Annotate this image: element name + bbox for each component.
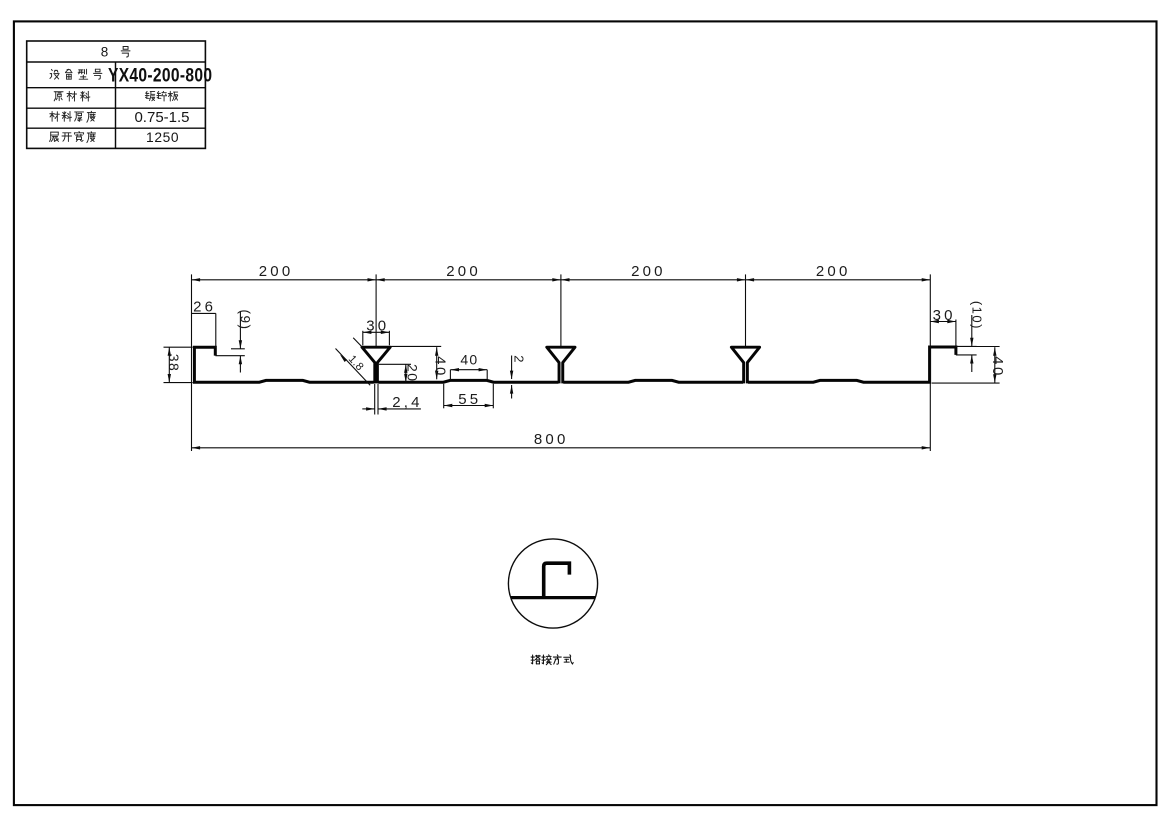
- svg-text:2: 2: [512, 355, 527, 362]
- svg-text:2,4: 2,4: [392, 394, 422, 411]
- svg-text:20: 20: [404, 364, 420, 383]
- svg-text:30: 30: [366, 318, 389, 335]
- svg-text:38: 38: [166, 354, 182, 373]
- svg-text:200: 200: [259, 263, 294, 280]
- svg-text:40: 40: [989, 356, 1006, 378]
- svg-text:1250: 1250: [146, 130, 179, 145]
- svg-text:200: 200: [446, 263, 481, 280]
- svg-text:30: 30: [933, 307, 956, 324]
- svg-text:800: 800: [534, 431, 569, 448]
- svg-text:(10): (10): [970, 301, 985, 330]
- svg-text:0.75-1.5: 0.75-1.5: [134, 109, 189, 126]
- svg-text:40: 40: [460, 352, 478, 368]
- svg-text:YX40-200-800: YX40-200-800: [108, 64, 212, 86]
- svg-text:55: 55: [458, 391, 481, 408]
- svg-text:26: 26: [193, 299, 216, 316]
- svg-text:(9): (9): [238, 310, 253, 331]
- svg-text:8: 8: [101, 45, 109, 60]
- svg-text:40: 40: [432, 356, 449, 378]
- svg-text:200: 200: [631, 263, 666, 280]
- svg-text:200: 200: [816, 263, 851, 280]
- svg-text:1.8: 1.8: [346, 353, 366, 373]
